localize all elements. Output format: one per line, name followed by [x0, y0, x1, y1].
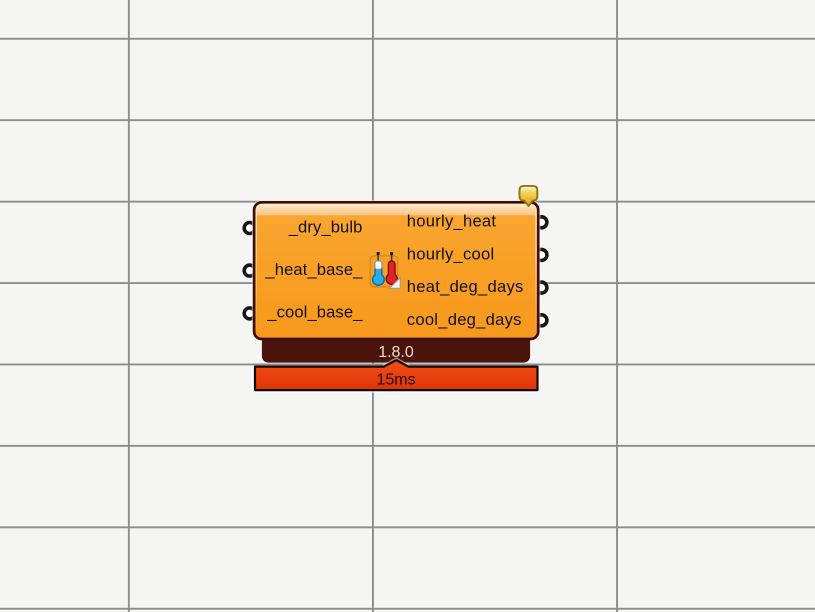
svg-text:_cool_base_: _cool_base_ [266, 303, 363, 322]
svg-text:_heat_base_: _heat_base_ [264, 260, 363, 279]
svg-text:hourly_cool: hourly_cool [407, 244, 495, 263]
svg-text:hourly_heat: hourly_heat [407, 212, 497, 231]
svg-text:_dry_bulb: _dry_bulb [288, 217, 363, 236]
svg-text:heat_deg_days: heat_deg_days [407, 277, 524, 296]
svg-text:cool_deg_days: cool_deg_days [407, 310, 522, 329]
svg-text:15ms: 15ms [376, 371, 415, 388]
